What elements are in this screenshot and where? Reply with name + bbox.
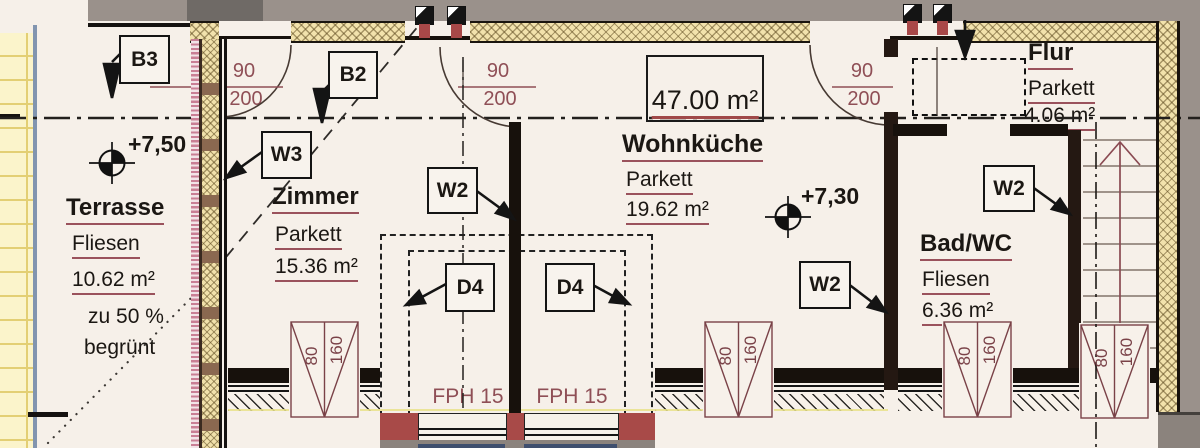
window-height-label: 160 — [327, 328, 347, 372]
floor-plan: Terrasse Fliesen 10.62 m² zu 50 % begrün… — [0, 0, 1200, 448]
level-marker-750 — [89, 142, 135, 184]
ref-label-w2: W2 — [799, 261, 851, 309]
window-width-label: 80 — [302, 334, 322, 378]
total-area-box: 47.00 m² — [646, 55, 764, 122]
plan-symbols — [0, 0, 1200, 448]
window-width-label: 80 — [1092, 336, 1112, 380]
ref-label-d4: D4 — [545, 263, 595, 312]
window-height-label: 160 — [741, 328, 761, 372]
ref-label-b2: B2 — [328, 51, 378, 99]
window-height-label: 160 — [1117, 330, 1137, 374]
window-width-label: 80 — [716, 334, 736, 378]
ref-label-w3: W3 — [261, 131, 312, 179]
ref-label-d4: D4 — [445, 263, 495, 312]
ref-label-b3: B3 — [119, 35, 170, 84]
level-marker-730 — [765, 196, 811, 238]
ref-label-w2: W2 — [983, 165, 1035, 212]
ref-label-w2: W2 — [427, 167, 478, 214]
window-height-label: 160 — [980, 328, 1000, 372]
total-area-value: 47.00 m² — [652, 85, 759, 119]
window-width-label: 80 — [955, 334, 975, 378]
